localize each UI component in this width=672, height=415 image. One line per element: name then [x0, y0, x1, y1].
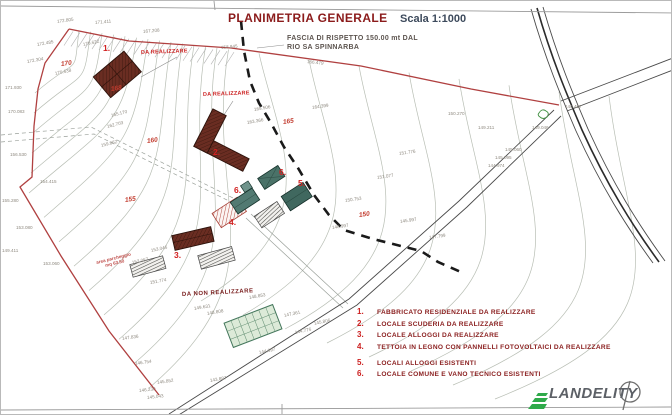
spot-elevation-label: 155.280 — [2, 198, 19, 203]
landelity-logo: LANDELITY — [549, 385, 638, 402]
legend-item-label: LOCALI ALLOGGI ESISTENTI — [377, 360, 476, 367]
fascia-note-line1: FASCIA DI RISPETTO 150.00 mt DAL — [287, 34, 418, 43]
spot-elevation-label: 149.046 — [532, 125, 549, 130]
legend-item: 1.FABBRICATO RESIDENZIALE DA REALIZZARE — [357, 307, 611, 316]
contour-line — [197, 49, 206, 63]
index-contour-label: 170 — [61, 60, 73, 68]
legend: 1.FABBRICATO RESIDENZIALE DA REALIZZARE2… — [357, 307, 611, 381]
legend-item-label: LOCALE COMUNE E VANO TECNICO ESISTENTI — [377, 371, 541, 378]
legend-item-number: 4. — [357, 342, 377, 351]
contour-line — [190, 48, 199, 62]
legend-item: 2.LOCALE SCUDERIA DA REALIZZARE — [357, 319, 611, 328]
building-number-marker: 4. — [229, 217, 236, 227]
drawing-title: PLANIMETRIA GENERALE Scala 1:1000 — [228, 9, 466, 27]
contour-line — [243, 60, 336, 315]
index-contour-label: 155 — [125, 196, 137, 204]
contour-line — [218, 51, 227, 65]
greenhouse-grid — [224, 305, 282, 348]
legend-item: 6.LOCALE COMUNE E VANO TECNICO ESISTENTI — [357, 369, 611, 378]
legend-item-label: FABBRICATO RESIDENZIALE DA REALIZZARE — [377, 309, 536, 316]
contour-line — [31, 36, 125, 173]
fascia-di-rispetto-note: FASCIA DI RISPETTO 150.00 mt DAL RIO SA … — [287, 34, 418, 52]
legend-item-number: 3. — [357, 330, 377, 339]
contour-line — [71, 32, 80, 46]
spot-elevation-label: 153.060 — [43, 261, 60, 266]
legend-item: 3.LOCALE ALLOGGI DA REALIZZARE — [357, 330, 611, 339]
legend-item-number: 6. — [357, 369, 377, 378]
spot-elevation-label: 149.211 — [478, 125, 494, 130]
spot-elevation-label: 144.974 — [488, 163, 505, 168]
legend-item-label: LOCALE ALLOGGI DA REALIZZARE — [377, 332, 499, 339]
index-contour-label: 160 — [147, 137, 159, 145]
building-number-marker: 6. — [279, 167, 286, 177]
building-number-marker: 6. — [234, 185, 241, 195]
spot-elevation-label: 153.080 — [16, 225, 33, 230]
tree-symbol — [538, 110, 548, 119]
spot-elevation-label: 156.530 — [10, 152, 27, 157]
contour-line — [32, 35, 114, 153]
legend-item-label: LOCALE SCUDERIA DA REALIZZARE — [377, 321, 504, 328]
building-3-alloggi — [172, 227, 214, 251]
spot-elevation-label: 171.930 — [5, 85, 22, 90]
legend-item: 4.TETTOIA IN LEGNO CON PANNELLI FOTOVOLT… — [357, 342, 611, 351]
building-number-marker: 1. — [103, 43, 110, 53]
spot-elevation-label: 149.411 — [2, 248, 18, 253]
spot-elevation-label: 170.083 — [8, 109, 25, 114]
legend-item-number: 5. — [357, 358, 377, 367]
legend-item-label: TETTOIA IN LEGNO CON PANNELLI FOTOVOLTAI… — [377, 344, 611, 351]
road-highway — [531, 7, 665, 263]
contour-line — [35, 30, 79, 93]
spot-elevation-label: 140.457 — [565, 104, 582, 109]
spot-elevation-label: 145.095 — [495, 155, 512, 160]
drawing-scale-text: Scala 1:1000 — [400, 13, 466, 25]
spot-elevation-label: 145.060 — [505, 147, 522, 152]
fascia-note-line2: RIO SA SPINNARBA — [287, 43, 418, 52]
spot-elevation-label: 150.270 — [448, 111, 465, 116]
building-number-marker: 5. — [298, 178, 305, 188]
legend-item-number: 1. — [357, 307, 377, 316]
building-number-marker: 3. — [174, 250, 181, 260]
site-plan-page: PLANIMETRIA GENERALE Scala 1:1000 FASCIA… — [0, 0, 672, 415]
contour-line — [225, 52, 234, 66]
building-number-marker: 2. — [213, 147, 220, 157]
legend-item-number: 2. — [357, 319, 377, 328]
landelity-logo-icon — [528, 393, 548, 409]
contour-line — [211, 50, 220, 64]
index-contour-label: 168 — [111, 85, 123, 93]
index-contour-label: 150 — [359, 211, 371, 219]
spot-elevation-label: 154.415 — [40, 179, 57, 184]
legend-item: 5.LOCALI ALLOGGI ESISTENTI — [357, 358, 611, 367]
contour-line — [33, 33, 102, 133]
index-contour-label: 165 — [283, 118, 295, 126]
drawing-title-text: PLANIMETRIA GENERALE — [228, 11, 388, 25]
contour-line — [204, 49, 213, 63]
